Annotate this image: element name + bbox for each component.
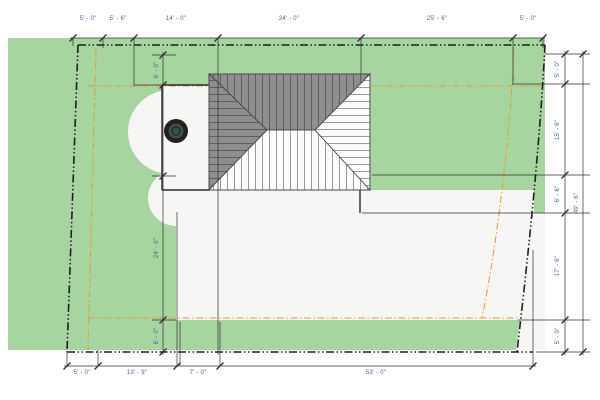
- site-plan-canvas: 5' - 0" 5' - 6" 14' - 0" 24' - 0" 25' - …: [0, 0, 600, 400]
- tree-icon: [164, 119, 188, 143]
- site-plan-drawing: [0, 0, 600, 400]
- hip-roof: [209, 74, 370, 190]
